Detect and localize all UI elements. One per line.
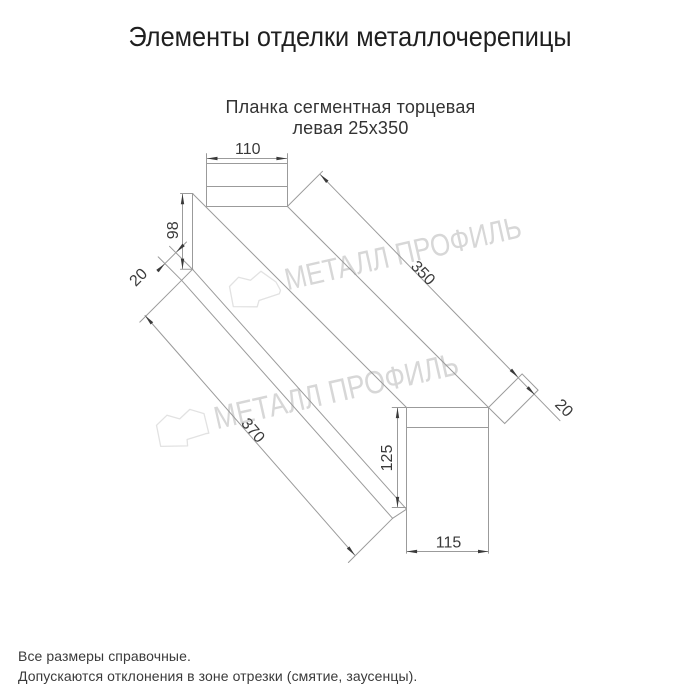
- svg-text:98: 98: [165, 221, 182, 239]
- svg-text:110: 110: [235, 141, 261, 158]
- svg-text:125: 125: [379, 445, 396, 472]
- svg-text:20: 20: [127, 265, 152, 290]
- svg-text:МЕТАЛЛ ПРОФИЛЬ: МЕТАЛЛ ПРОФИЛЬ: [281, 210, 524, 297]
- svg-text:115: 115: [436, 535, 462, 552]
- svg-text:20: 20: [551, 396, 576, 421]
